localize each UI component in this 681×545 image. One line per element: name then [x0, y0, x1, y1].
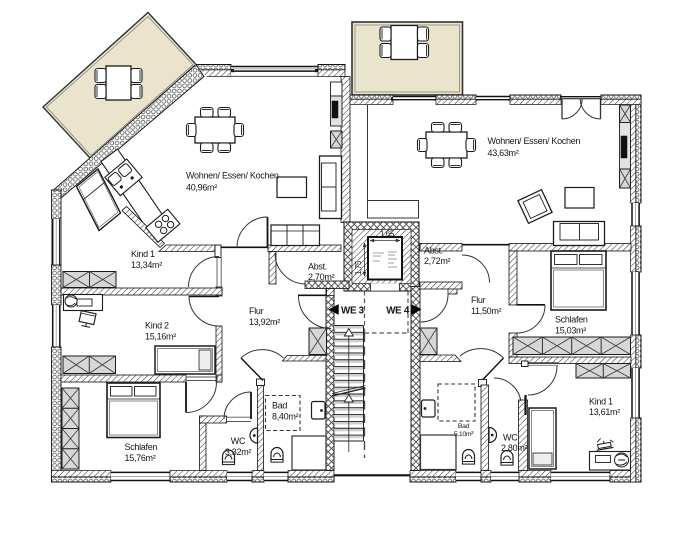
svg-text:2,70m²: 2,70m² [308, 272, 335, 282]
svg-text:43,63m²: 43,63m² [488, 148, 519, 158]
svg-text:Abst.: Abst. [424, 246, 443, 256]
svg-text:Kind 2: Kind 2 [145, 321, 169, 331]
svg-text:8,40m²: 8,40m² [272, 412, 299, 422]
svg-text:Wohnen/ Essen/ Kochen: Wohnen/ Essen/ Kochen [186, 171, 279, 181]
svg-text:1,75: 1,75 [354, 260, 363, 275]
svg-text:40,96m²: 40,96m² [186, 183, 217, 193]
svg-text:Flur: Flur [249, 306, 264, 316]
svg-text:13,34m²: 13,34m² [131, 260, 162, 270]
svg-text:2,72m²: 2,72m² [424, 256, 451, 266]
svg-text:Bad: Bad [272, 401, 287, 411]
svg-text:15,76m²: 15,76m² [125, 453, 156, 463]
svg-text:5,10m²: 5,10m² [454, 431, 474, 438]
svg-text:2,80m²: 2,80m² [501, 443, 528, 453]
svg-text:WC: WC [231, 436, 246, 446]
svg-text:WE 4: WE 4 [386, 306, 410, 317]
svg-text:3,32m²: 3,32m² [225, 447, 252, 457]
svg-text:1,65: 1,65 [380, 230, 395, 239]
svg-text:15,03m²: 15,03m² [555, 326, 586, 336]
svg-text:Schlafen: Schlafen [125, 442, 158, 452]
svg-text:Kind 1: Kind 1 [131, 249, 155, 259]
svg-text:Flur: Flur [471, 295, 486, 305]
svg-text:Abst.: Abst. [308, 262, 327, 272]
svg-text:Wohnen/ Essen/ Kochen: Wohnen/ Essen/ Kochen [488, 136, 581, 146]
svg-text:13,92m²: 13,92m² [249, 317, 280, 327]
svg-text:WC: WC [503, 433, 518, 443]
svg-text:Bad: Bad [458, 423, 470, 430]
svg-text:13,61m²: 13,61m² [589, 407, 620, 417]
svg-text:Schlafen: Schlafen [555, 315, 588, 325]
svg-text:Kind 1: Kind 1 [589, 397, 613, 407]
svg-text:WE 3: WE 3 [341, 306, 365, 317]
svg-text:11,50m²: 11,50m² [471, 306, 502, 316]
svg-text:15,16m²: 15,16m² [145, 332, 176, 342]
